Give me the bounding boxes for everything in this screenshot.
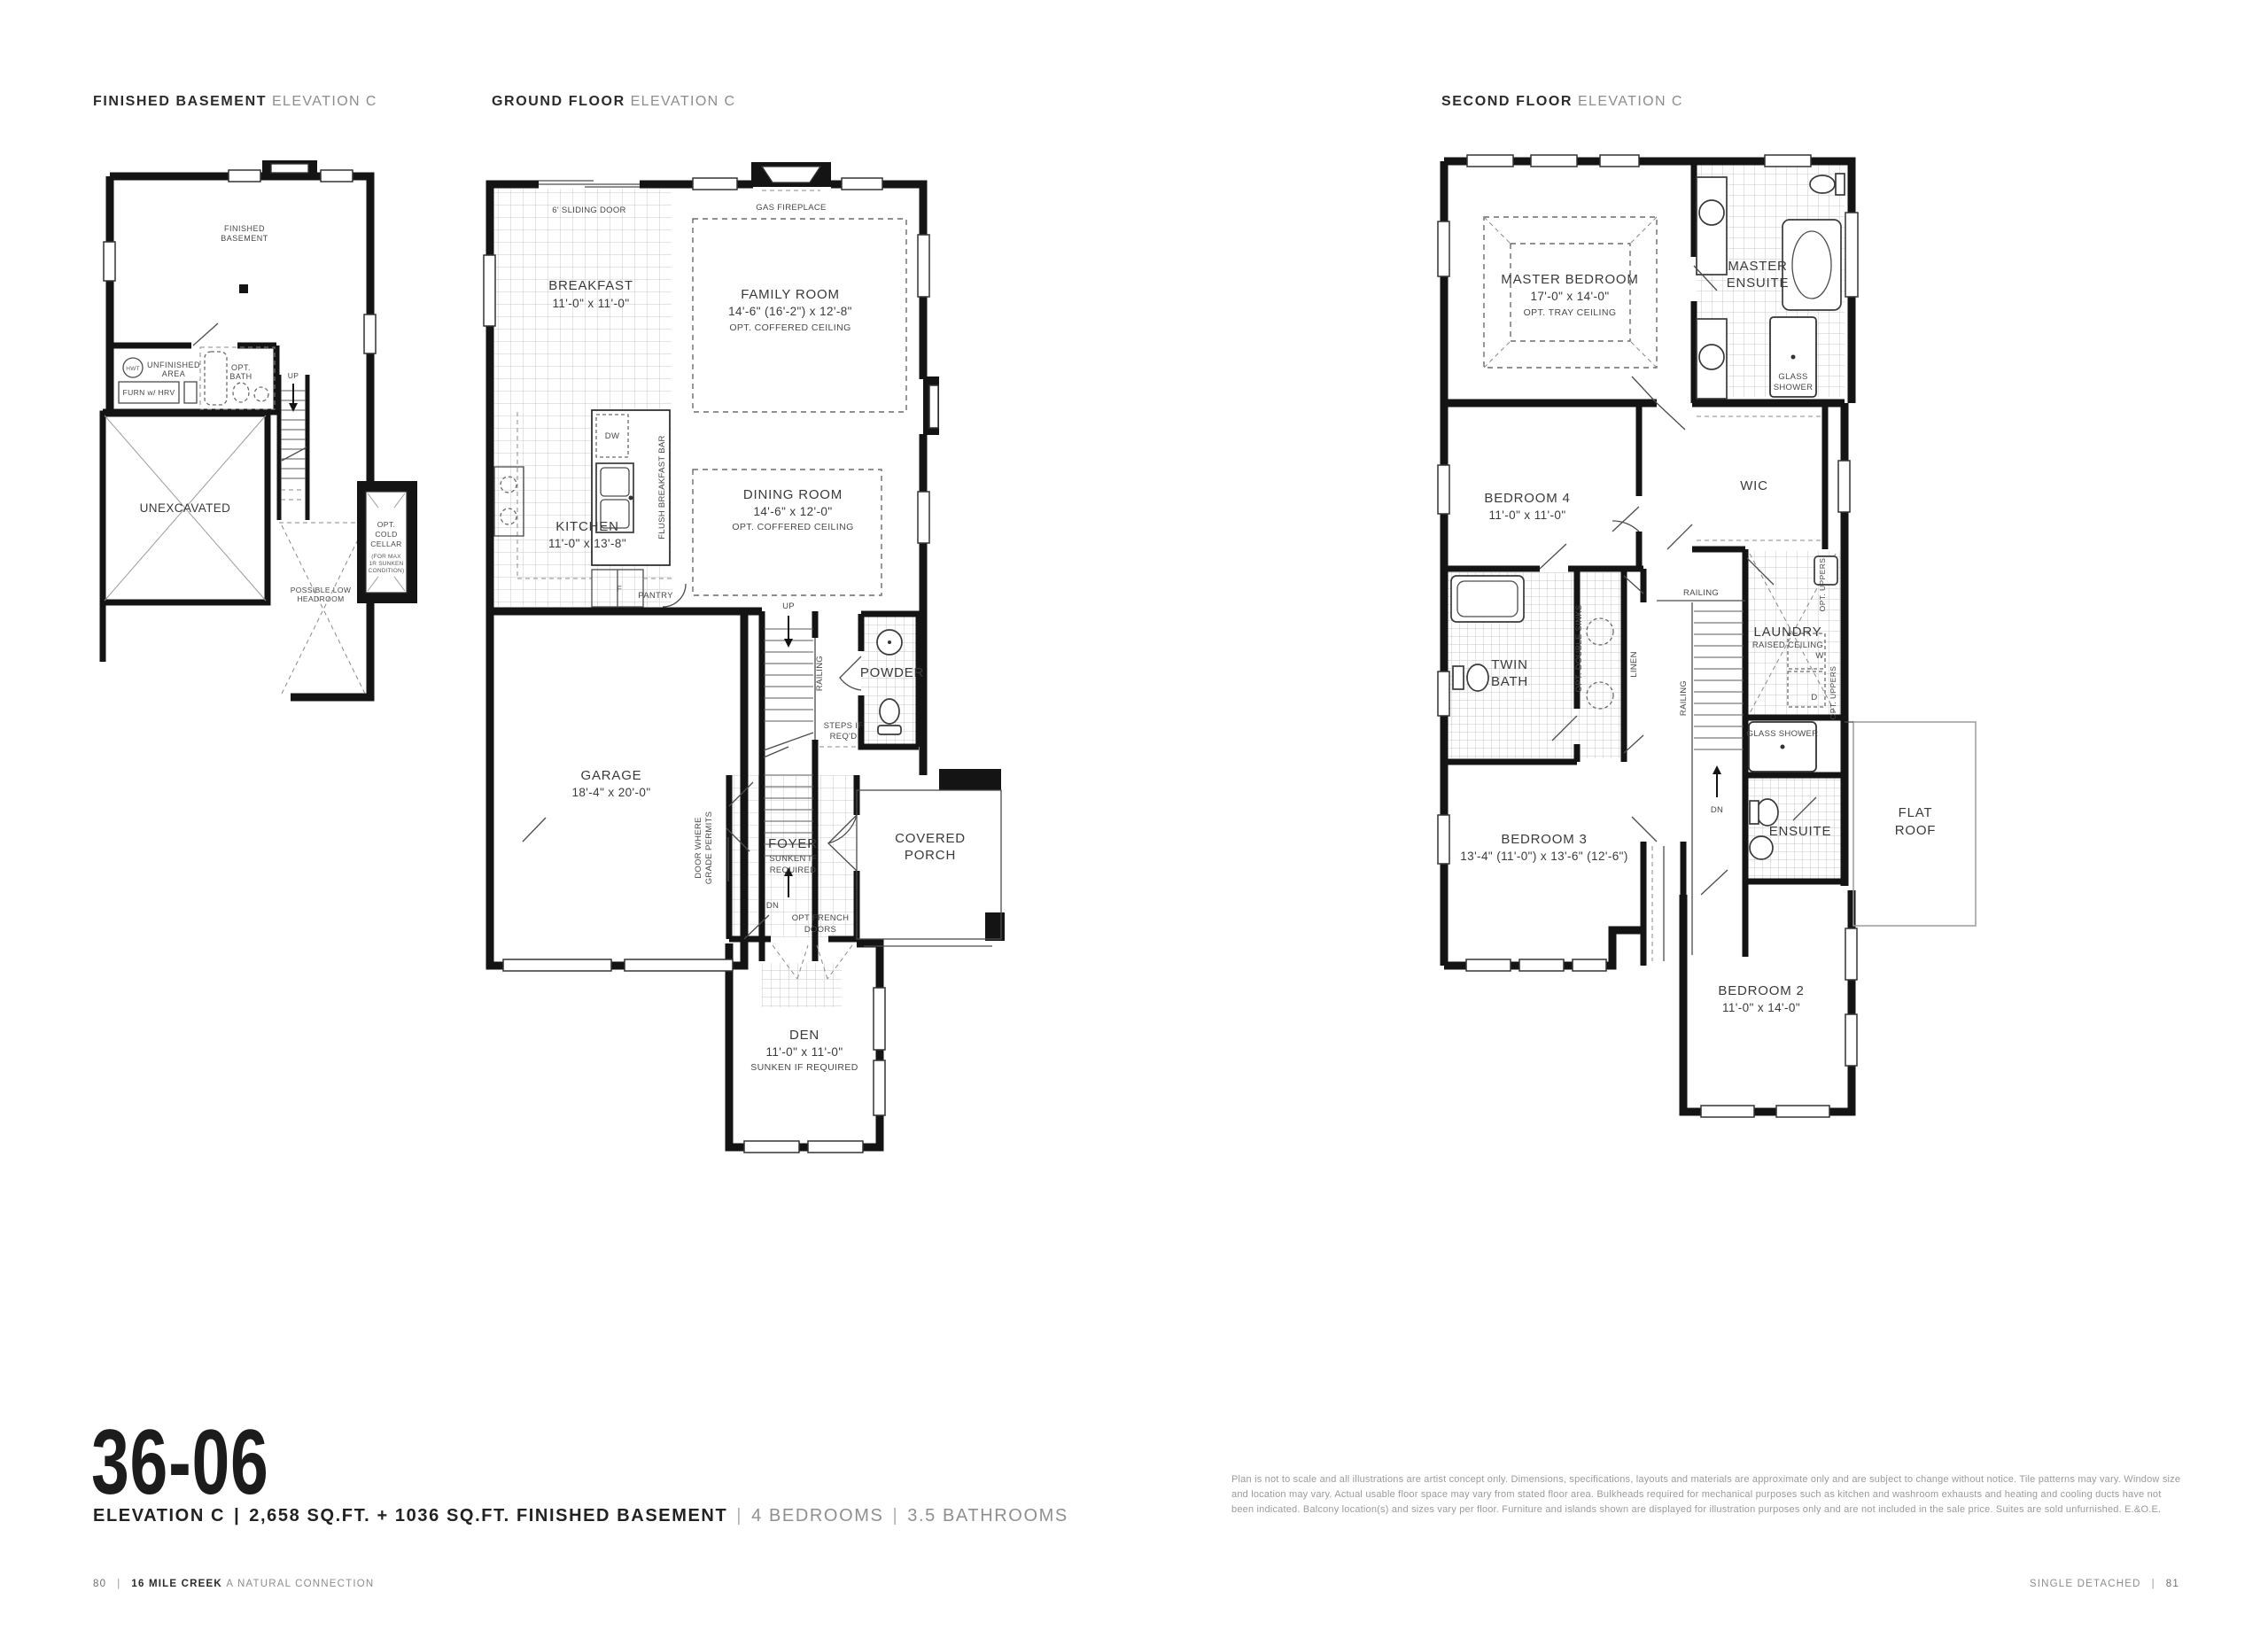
summary-sqft: 2,658 SQ.FT. + 1036 SQ.FT. FINISHED BASE… [249,1506,727,1525]
basement-room-label: FINISHED [224,224,265,233]
washer-label: W [1815,651,1823,661]
porch-label1: COVERED [895,831,966,846]
footer-tagline: A NATURAL CONNECTION [226,1579,374,1589]
footer-right: SINGLE DETACHED|81 [2030,1579,2179,1589]
bedroom2-dims: 11'-0" x 14'-0" [1722,1001,1800,1014]
steps-label1: STEPS IF [824,721,864,731]
footer-page-left: 80 [93,1579,106,1589]
footer-page-right: 81 [2166,1579,2179,1589]
second-plan-title-light: ELEVATION C [1578,94,1683,109]
basement-plan-title: FINISHED BASEMENT ELEVATION C [93,94,377,110]
opt-bath-label: OPT. [231,363,251,372]
french-doors-label2: DOORS [804,925,836,935]
ground-coffered-ceilings [693,219,906,595]
dryer-label: D [1811,693,1817,703]
flat-roof-label1: FLAT [1899,805,1933,820]
bedroom3-label: BEDROOM 3 [1501,832,1587,847]
breakfast-dims: 11'-0" x 11'-0" [552,297,629,310]
basement-post [239,284,248,293]
master-ensuite-label1: MASTER [1728,259,1787,274]
disclaimer-text: Plan is not to scale and all illustratio… [1231,1472,2184,1518]
summary-separator-2: | [727,1506,751,1525]
cold-cellar-note3: CONDITION) [369,568,405,574]
unexcavated-label: UNEXCAVATED [140,501,231,515]
dining-dims: 14'-6" x 12'-0" [753,505,832,518]
ground-floor-plan-drawing: 6' SLIDING DOOR GAS FIREPLACE BREAKFAST … [461,155,1072,1165]
model-number: 36-06 [91,1410,269,1516]
hwt-label: HWT [126,366,139,372]
bedroom2-label: BEDROOM 2 [1718,983,1804,998]
laundry-note: RAISED CEILING [1752,640,1823,650]
family-room-label: FAMILY ROOM [741,287,840,302]
den-note: SUNKEN IF REQUIRED [750,1062,858,1073]
second-floor-plan-drawing: MASTER BEDROOM 17'-0" x 14'-0" OPT. TRAY… [1435,142,2064,1152]
basement-room-label2: BASEMENT [221,234,268,243]
ensuite-label: ENSUITE [1769,824,1832,839]
linen-label: LINEN [1629,651,1639,677]
summary-elevation: ELEVATION C [93,1506,225,1525]
den-label: DEN [789,1028,819,1043]
summary-separator-1: | [225,1506,249,1525]
brochure-page: { "headers": { "basement": {"bold": "FIN… [0,0,2268,1638]
basement-plan-title-bold: FINISHED BASEMENT [93,94,267,109]
up-label: UP [288,371,299,380]
railing-h-label: RAILING [1683,588,1719,598]
basement-stairs [281,384,307,500]
master-bedroom-note: OPT. TRAY CEILING [1524,307,1617,318]
flush-bar-label: FLUSH BREAKFAST BAR [657,435,667,539]
gas-fireplace-label: GAS FIREPLACE [756,203,826,213]
twin-bath-label2: BATH [1491,674,1528,689]
unfinished-area-label2: AREA [162,369,186,378]
ground-floor-plan: 6' SLIDING DOOR GAS FIREPLACE BREAKFAST … [461,155,1072,1169]
dining-note: OPT. COFFERED CEILING [732,522,853,532]
footer-left: 80|16 MILE CREEK A NATURAL CONNECTION [93,1579,374,1589]
basement-floor-plan: FINISHED BASEMENT UNFINISHED AREA HWT FU… [89,155,434,744]
footer-bar-left: | [106,1579,131,1589]
railing-label: RAILING [815,656,825,691]
cold-cellar-note1: (FOR MAX [371,554,401,560]
den-dims: 11'-0" x 11'-0" [765,1045,843,1059]
footer-bar-right: | [2141,1579,2166,1589]
second-stairs [1657,601,1745,955]
foyer-label: FOYER [768,836,818,851]
basement-low-headroom [279,523,368,694]
ground-plan-title-light: ELEVATION C [631,94,736,109]
kitchen-label: KITCHEN [555,519,618,534]
breakfast-label: BREAKFAST [548,278,633,293]
steps-label2: REQ'D [830,732,858,741]
master-bedroom-dims: 17'-0" x 14'-0" [1530,290,1609,303]
summary-separator-3: | [883,1506,907,1525]
ground-sliding-door [539,181,640,187]
furnace-label: FURN w/ HRV [122,388,175,397]
second-closet [1652,846,1664,961]
family-room-dims: 14'-6" (16'-2") x 12'-8" [728,305,852,318]
grade-door-label1: DOOR WHERE [694,817,703,879]
master-bedroom-label: MASTER BEDROOM [1501,272,1638,287]
laundry-label: LAUNDRY [1753,625,1821,640]
glass-shower-label2: SHOWER [1774,383,1814,392]
second-plan-title-bold: SECOND FLOOR [1441,94,1573,109]
opt-uppers-label2: OPT. UPPERS [1829,666,1837,720]
second-plan-title: SECOND FLOOR ELEVATION C [1441,94,1683,110]
basement-floor-plan-drawing: FINISHED BASEMENT UNFINISHED AREA HWT FU… [89,155,434,740]
basement-windows [104,170,376,353]
foyer-note1: SUNKEN IF [769,854,816,864]
low-headroom-label1: POSSIBLE LOW [291,586,352,594]
ground-plan-title: GROUND FLOOR ELEVATION C [492,94,735,110]
pantry-label: PANTRY [638,591,673,601]
dn-label: DN [1711,805,1723,815]
footer-brand: 16 MILE CREEK [131,1579,222,1589]
opt-bath-label2: BATH [229,372,252,381]
dn-label: DN [766,901,779,911]
bedroom4-dims: 11'-0" x 11'-0" [1488,508,1565,522]
family-room-note: OPT. COFFERED CEILING [729,322,850,333]
cold-cellar-note2: 1R SUNKEN [369,561,403,567]
cold-cellar-label3: CELLAR [370,540,401,548]
second-floor-plan: MASTER BEDROOM 17'-0" x 14'-0" OPT. TRAY… [1435,142,2064,1156]
footer-category: SINGLE DETACHED [2030,1579,2141,1589]
plan-summary-line: ELEVATION C|2,658 SQ.FT. + 1036 SQ.FT. F… [93,1506,1068,1526]
dining-label: DINING ROOM [743,487,843,502]
kitchen-dims: 11'-0" x 13'-8" [548,537,626,550]
summary-bathrooms: 3.5 BATHROOMS [907,1506,1068,1525]
foyer-note2: REQUIRED [770,866,817,875]
glass-shower-label1: GLASS [1778,372,1807,382]
glass-shower2-label: GLASS SHOWER [1747,729,1819,739]
bedroom3-dims: 13'-4" (11'-0") x 13'-6" (12'-6") [1460,850,1628,863]
railing-v-label: RAILING [1679,680,1689,716]
ground-porch [857,790,1001,946]
wic-label: WIC [1740,478,1768,493]
second-wic-shelves [1657,403,1821,549]
dw-label: DW [605,431,619,441]
up-label: UP [782,602,795,611]
opt-uppers-label1: OPT. UPPERS [1818,558,1827,612]
cold-cellar-label2: COLD [375,530,397,539]
summary-bedrooms: 4 BEDROOMS [751,1506,883,1525]
french-doors-label1: OPT FRENCH [792,913,850,923]
basement-plan-title-light: ELEVATION C [272,94,377,109]
powder-label: POWDER [860,665,924,680]
fridge-label: F [617,585,622,594]
grade-door-label2: GRADE PERMITS [704,811,714,885]
twin-bath-label1: TWIN [1491,657,1528,672]
porch-label2: PORCH [905,848,956,863]
cold-cellar-label1: OPT. [377,520,396,529]
flat-roof-label2: ROOF [1895,823,1937,838]
master-ensuite-label2: ENSUITE [1727,276,1790,291]
sliding-door-label: 6' SLIDING DOOR [552,206,625,215]
unfinished-area-label: UNFINISHED [147,361,200,369]
bedroom4-label: BEDROOM 4 [1484,491,1570,506]
low-headroom-label2: HEADROOM [297,594,344,603]
garage-dims: 18'-4" x 20'-0" [571,786,650,799]
ground-plan-title-bold: GROUND FLOOR [492,94,625,109]
garage-label: GARAGE [581,768,642,783]
double-sinks-label: OPT. DOUBLE SINKS [1574,604,1584,692]
